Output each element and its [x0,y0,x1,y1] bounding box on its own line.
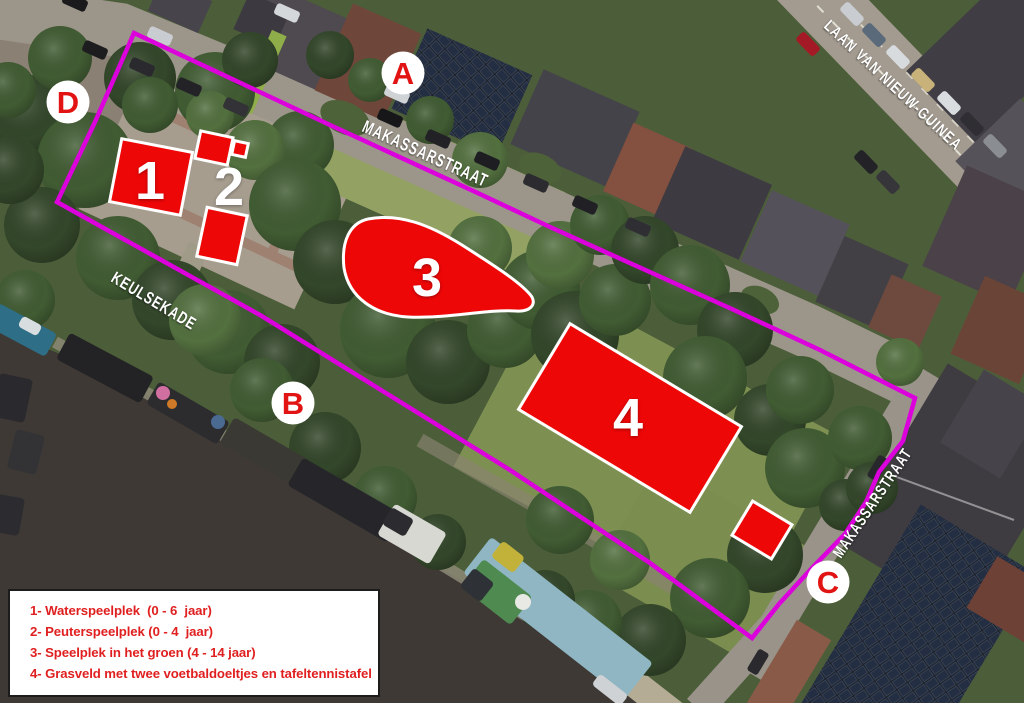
legend-item-2: 2- Peuterspeelplek (0 - 4 jaar) [30,621,372,642]
play-area-number-4: 4 [613,388,643,448]
location-marker-c: C [807,561,850,604]
marker-letter: A [392,56,414,91]
marker-letter: D [57,85,79,120]
aerial-map-figure: 1234ABCDMAKASSARSTRAATKEULSEKADELAAN VAN… [0,0,1024,703]
marker-letter: B [282,386,304,421]
location-marker-d: D [47,81,90,124]
play-area-2b [232,141,249,158]
play-area-number-3: 3 [412,248,442,308]
play-area-number-1: 1 [135,151,165,211]
location-marker-b: B [272,382,315,425]
legend-item-1: 1- Waterspeelplek (0 - 6 jaar) [30,600,372,621]
location-marker-a: A [382,52,425,95]
marker-letter: C [817,565,839,600]
legend-box: 1- Waterspeelplek (0 - 6 jaar) 2- Peuter… [8,589,380,697]
legend-item-4: 4- Grasveld met twee voetbaldoeltjes en … [30,663,372,684]
legend-item-3: 3- Speelplek in het groen (4 - 14 jaar) [30,642,372,663]
play-area-number-2: 2 [214,157,244,217]
